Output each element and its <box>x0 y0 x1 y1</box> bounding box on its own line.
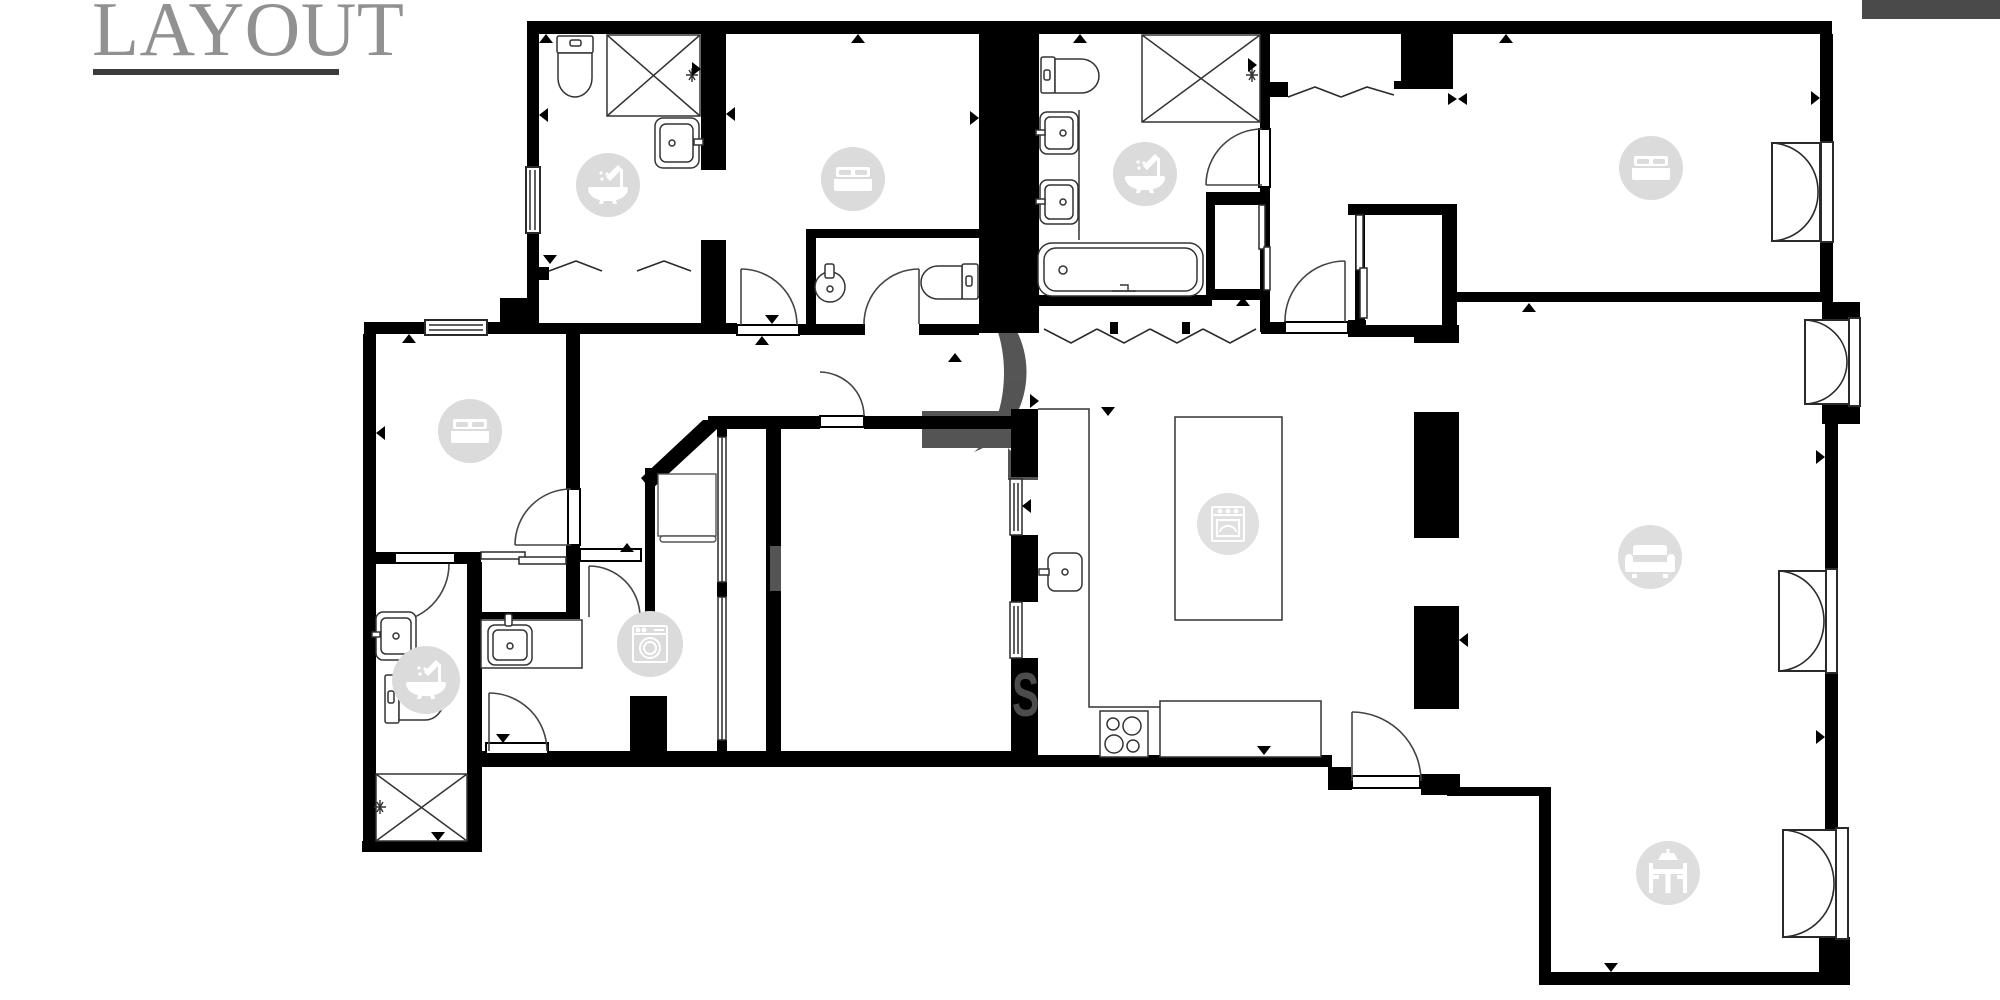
svg-text:S: S <box>1012 661 1039 731</box>
svg-text:LAYOUT: LAYOUT <box>92 0 404 72</box>
